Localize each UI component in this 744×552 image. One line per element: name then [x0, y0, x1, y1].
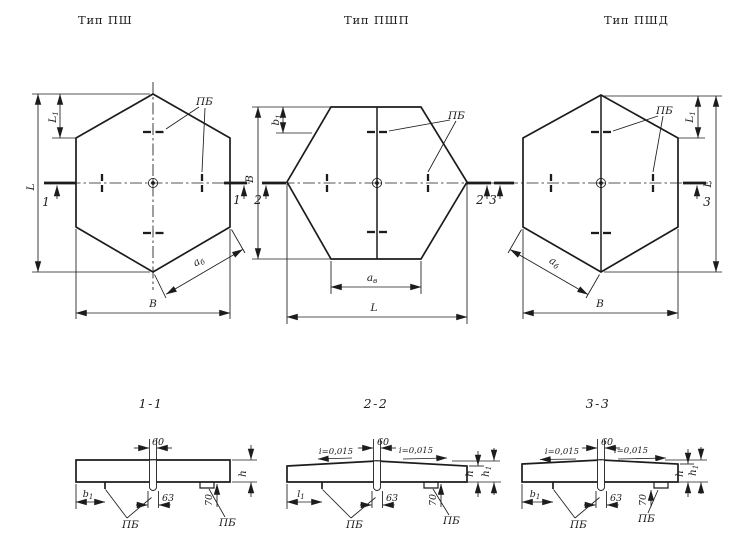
leader-line — [648, 490, 658, 513]
dim-63: 63 — [386, 493, 398, 504]
leader-line — [106, 490, 128, 519]
dim-60: 60 — [601, 437, 613, 448]
slope-label: i=0,015 — [399, 446, 433, 456]
leader-line — [323, 490, 352, 519]
center-hole-dot — [599, 181, 603, 185]
section-mark: 1 — [42, 195, 50, 209]
leader-line — [202, 108, 205, 172]
extension-line — [586, 275, 600, 299]
section-mark: 2 — [475, 193, 484, 207]
loop-label-pb: ПБ — [195, 96, 213, 108]
dim-label-a: аб — [191, 253, 207, 270]
plan-title-pshd: Тип ПШД — [604, 13, 669, 27]
section-mark: 3 — [703, 195, 711, 209]
mounting-slot — [150, 460, 157, 490]
plan-title-pshp: Тип ПШП — [344, 13, 409, 27]
dim-h1: h1 — [687, 465, 700, 476]
dim-label-L: L — [702, 180, 714, 188]
mounting-slot — [374, 461, 381, 490]
section-mark: 1 — [233, 193, 241, 207]
loop-label-pb: ПБ — [218, 517, 236, 529]
slope-arrow — [540, 459, 576, 460]
section-mark: 2 — [253, 193, 262, 207]
cross-section-3-3: 3-3 60 i=0,015 i=0,015 h h1 b1 63 — [522, 396, 708, 531]
section-title: 3-3 — [586, 396, 611, 411]
dim-h: h — [674, 470, 686, 477]
center-hole-dot — [375, 181, 379, 185]
loop-label-pb: ПБ — [655, 105, 673, 117]
dim-h: h — [237, 470, 249, 477]
dim-label-B: В — [148, 298, 157, 310]
dim-left: b1 — [83, 489, 94, 501]
loop-label-pb: ПБ — [442, 515, 460, 527]
dim-label-a: аб — [546, 255, 562, 272]
loop-label-pb: ПБ — [345, 519, 363, 531]
dim-label-L1: L1 — [684, 111, 697, 123]
technical-drawing: Тип ПШ Тип ПШП Тип ПШД 1 1 L L1 В — [0, 0, 744, 552]
dim-label-a: ав — [367, 272, 377, 285]
section-title: 1-1 — [139, 396, 164, 411]
leader-line — [428, 121, 456, 172]
plan-view-pshd: 3 3 L1 L В аб ПБ — [489, 95, 722, 319]
loop-pocket-notch — [424, 482, 438, 488]
section-mark: 3 — [489, 193, 497, 207]
dim-label-B: В — [595, 298, 604, 310]
dim-70: 70 — [638, 494, 649, 506]
dim-h1: h1 — [480, 466, 493, 477]
mounting-slot — [598, 460, 605, 490]
dim-63: 63 — [162, 493, 174, 504]
dim-label-L1: L1 — [47, 111, 60, 123]
leader-line — [554, 490, 576, 519]
dim-label-L: L — [25, 183, 37, 191]
dim-left: b1 — [530, 489, 541, 501]
section-title: 2-2 — [363, 396, 389, 411]
dim-label-L: L — [370, 302, 378, 314]
dimension-line — [510, 250, 588, 295]
extension-line — [232, 230, 246, 254]
gost-slab-drawing: Тип ПШ Тип ПШП Тип ПШД 1 1 L L1 В — [0, 0, 744, 552]
extension-line — [155, 275, 167, 299]
cross-section-2-2: 2-2 60 i=0,015 i=0,015 h h1 l1 63 — [287, 396, 501, 531]
center-hole-dot — [151, 181, 155, 185]
dimension-line — [166, 249, 243, 294]
slope-label: i=0,015 — [614, 446, 648, 456]
loop-label-pb: ПБ — [637, 513, 655, 525]
dim-label-b1: b1 — [270, 114, 283, 125]
leader-line — [389, 120, 450, 131]
loop-pocket-notch — [654, 482, 668, 488]
loop-label-pb: ПБ — [121, 519, 139, 531]
dim-63: 63 — [610, 493, 622, 504]
slope-label: i=0,015 — [319, 447, 353, 457]
dim-60: 60 — [152, 437, 164, 448]
dim-left: l1 — [297, 489, 305, 501]
dim-70: 70 — [204, 494, 215, 506]
cross-section-1-1: 1-1 60 h b1 63 70 ПБ ПБ — [76, 396, 257, 531]
slope-label: i=0,015 — [545, 447, 579, 457]
slope-arrow — [618, 458, 666, 459]
extension-line — [508, 230, 522, 254]
plan-view-pshp: 2 2 b1 В ав L ПБ — [244, 107, 496, 324]
plan-title-psh: Тип ПШ — [78, 13, 133, 27]
dim-60: 60 — [377, 437, 389, 448]
loop-label-pb: ПБ — [569, 519, 587, 531]
loop-pocket-notch — [200, 482, 214, 488]
slope-arrow — [318, 458, 352, 459]
plan-view-psh: 1 1 L L1 В аб ПБ — [25, 82, 252, 319]
slope-arrow — [403, 458, 447, 459]
dim-h: h — [464, 470, 476, 477]
dim-label-B: В — [244, 175, 256, 184]
